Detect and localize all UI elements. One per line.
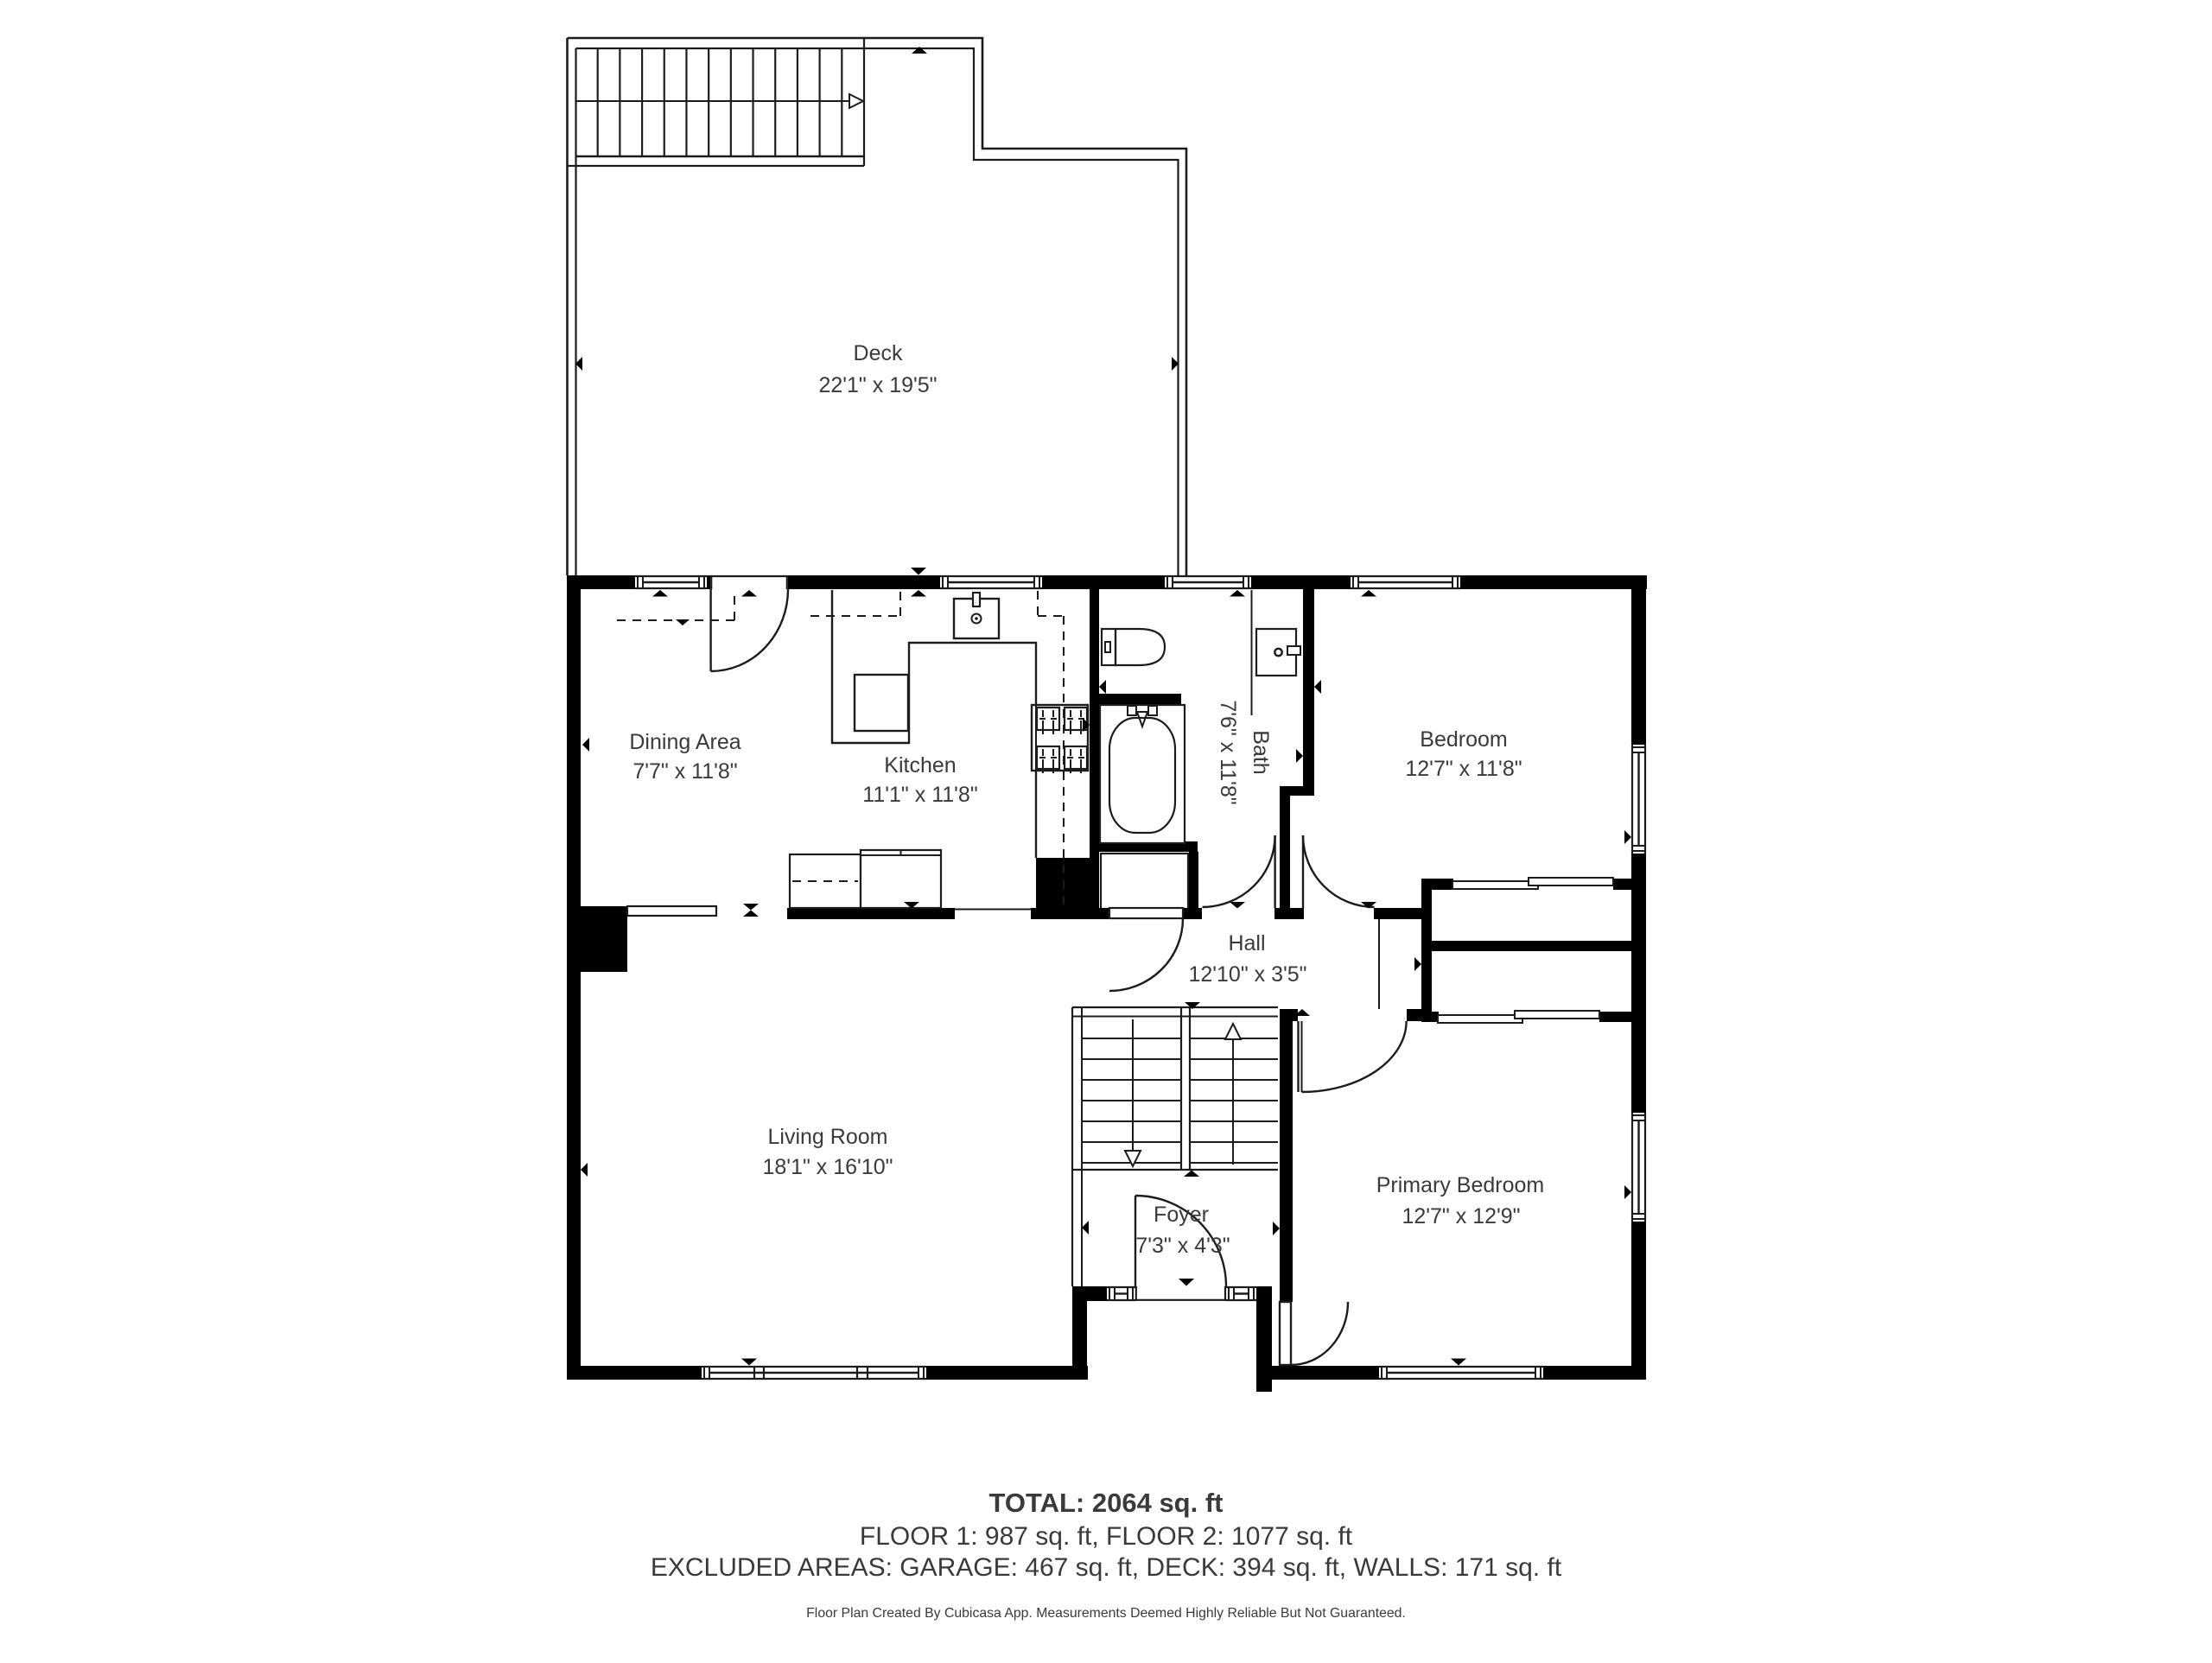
svg-text:22'1" x 19'5": 22'1" x 19'5"	[818, 373, 937, 397]
svg-text:Bedroom: Bedroom	[1420, 727, 1507, 752]
svg-text:FLOOR 1: 987 sq. ft, FLOOR 2:: FLOOR 1: 987 sq. ft, FLOOR 2: 1077 sq. f…	[860, 1522, 1353, 1551]
svg-text:7'3" x 4'3": 7'3" x 4'3"	[1135, 1234, 1230, 1258]
svg-text:Kitchen: Kitchen	[884, 753, 956, 778]
svg-text:Foyer: Foyer	[1154, 1203, 1209, 1227]
svg-text:Bath: Bath	[1249, 730, 1273, 774]
svg-text:Dining Area: Dining Area	[629, 730, 741, 754]
svg-text:Floor Plan Created By Cubicasa: Floor Plan Created By Cubicasa App. Meas…	[806, 1606, 1406, 1621]
svg-text:TOTAL: 2064 sq. ft: TOTAL: 2064 sq. ft	[988, 1488, 1223, 1518]
svg-text:18'1" x 16'10": 18'1" x 16'10"	[762, 1155, 893, 1179]
svg-text:12'7" x 11'8": 12'7" x 11'8"	[1405, 757, 1522, 781]
svg-text:EXCLUDED AREAS: GARAGE: 467 sq: EXCLUDED AREAS: GARAGE: 467 sq. ft, DECK…	[651, 1553, 1562, 1582]
svg-text:7'6" x 11'8": 7'6" x 11'8"	[1216, 700, 1240, 804]
svg-text:Deck: Deck	[854, 341, 903, 365]
svg-text:Hall: Hall	[1228, 931, 1265, 955]
svg-text:Primary Bedroom: Primary Bedroom	[1376, 1173, 1545, 1197]
svg-text:11'1" x 11'8": 11'1" x 11'8"	[862, 783, 977, 807]
svg-text:Living Room: Living Room	[768, 1125, 888, 1149]
svg-text:12'7" x 12'9": 12'7" x 12'9"	[1402, 1204, 1520, 1228]
svg-text:12'10" x 3'5": 12'10" x 3'5"	[1188, 962, 1306, 987]
svg-text:7'7" x 11'8": 7'7" x 11'8"	[632, 759, 737, 784]
